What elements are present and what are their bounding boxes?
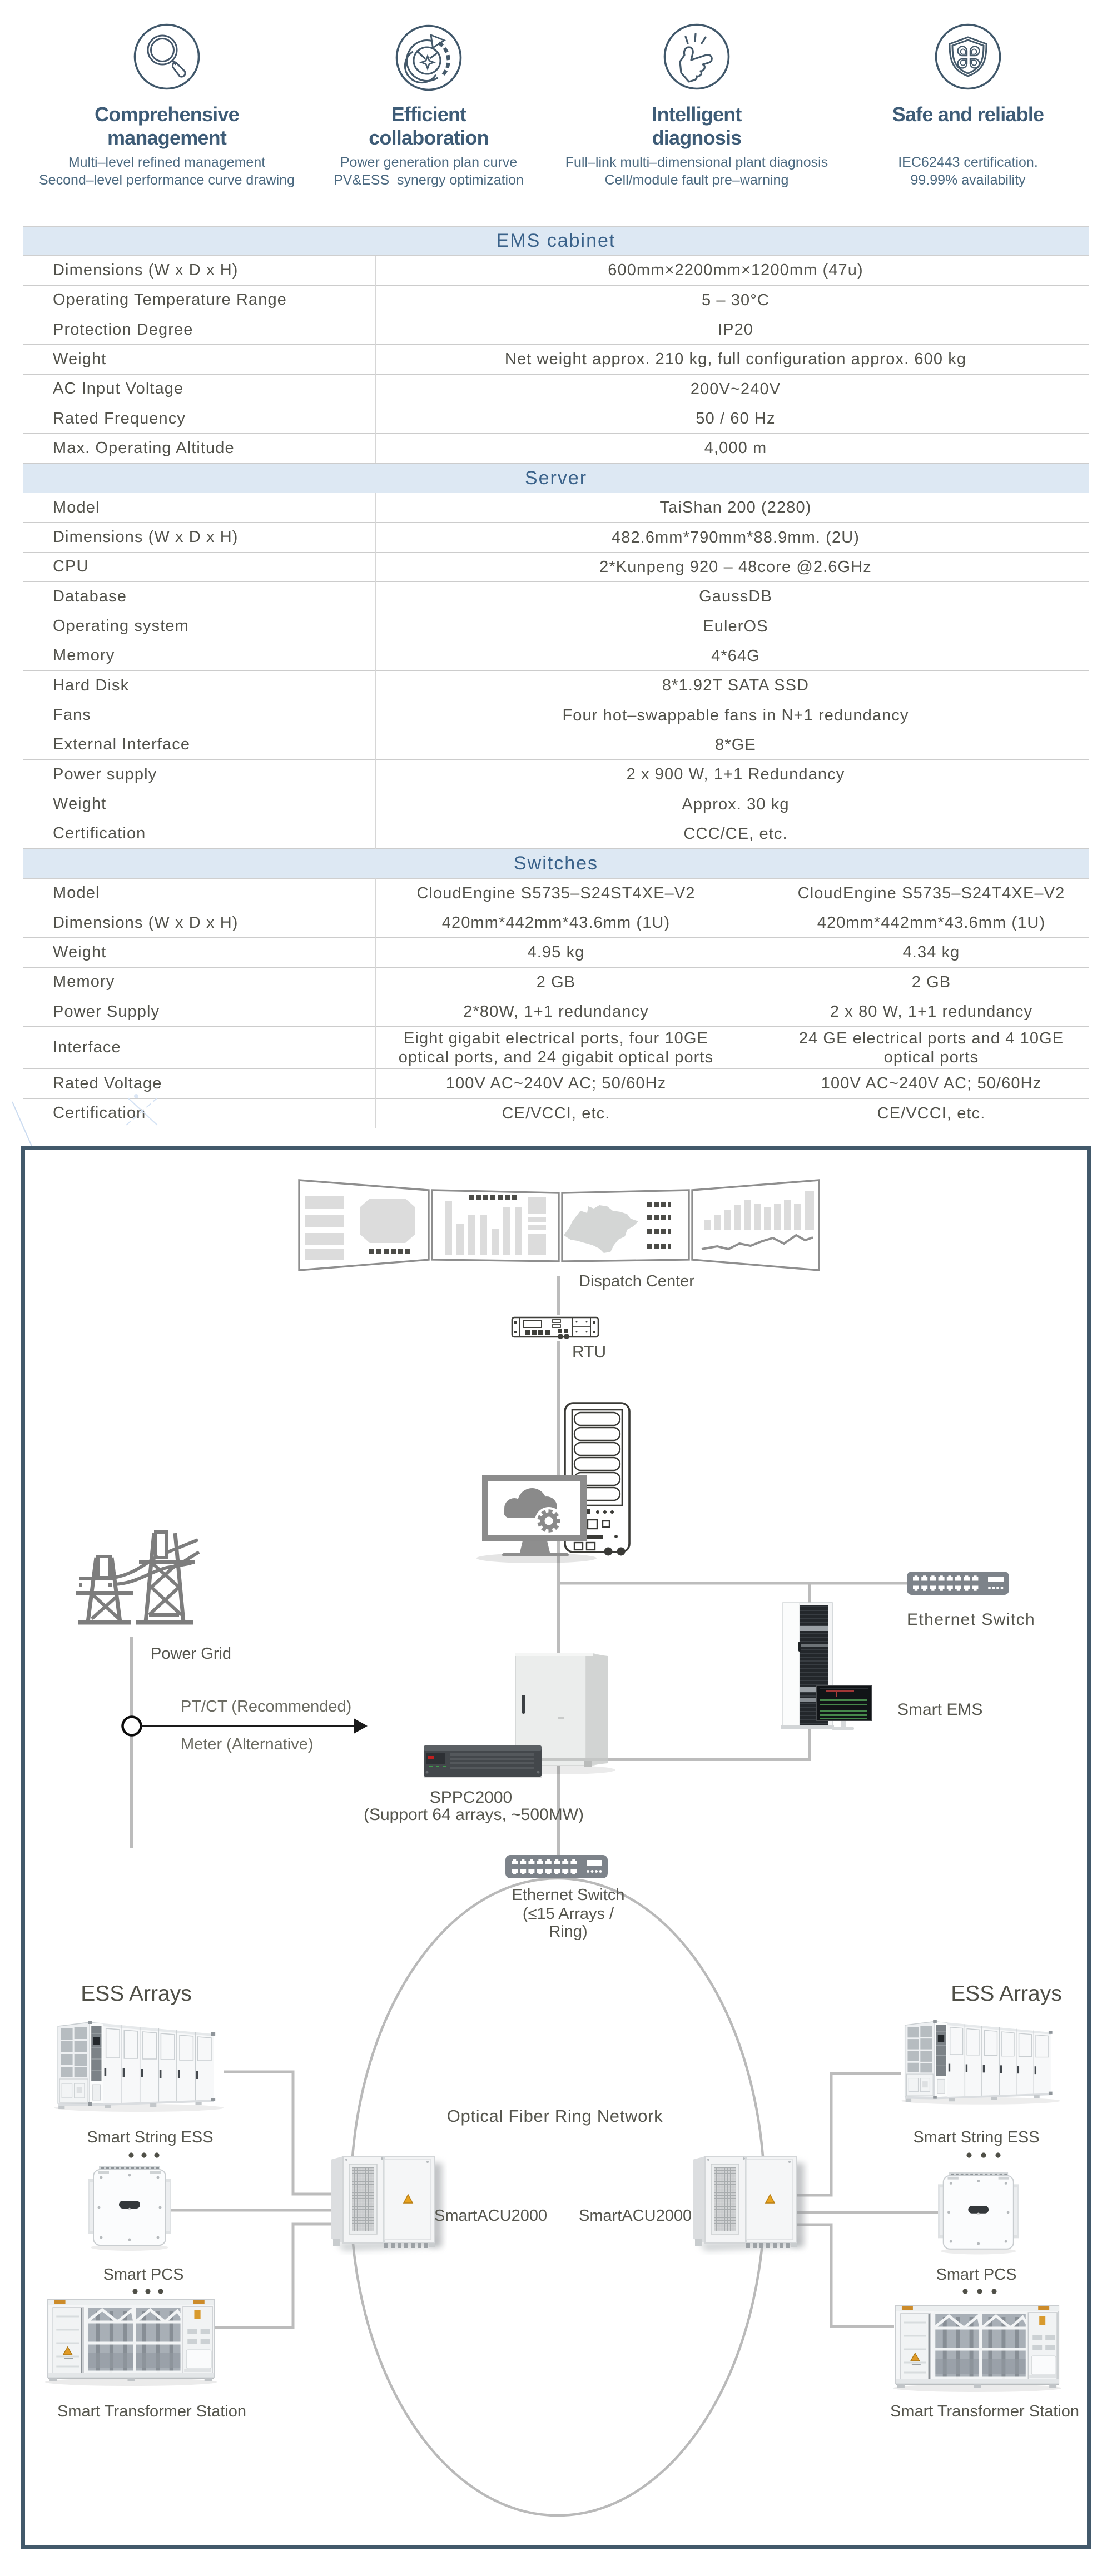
svg-text:RTU: RTU [572,1343,606,1361]
svg-text:ESS Arrays: ESS Arrays [81,1982,191,2006]
svg-text:Smart EMS: Smart EMS [897,1700,982,1719]
svg-text:Smart Transformer Station: Smart Transformer Station [57,2403,246,2420]
svg-text:(≤15 Arrays /: (≤15 Arrays / [523,1905,614,1923]
svg-text:Meter (Alternative): Meter (Alternative) [181,1735,314,1753]
svg-text:Ring): Ring) [549,1923,587,1941]
svg-text:Optical Fiber Ring Network: Optical Fiber Ring Network [447,2106,663,2126]
svg-text:Smart PCS: Smart PCS [103,2266,183,2284]
svg-text:ESS Arrays: ESS Arrays [951,1982,1061,2006]
svg-text:SPPC2000: SPPC2000 [430,1788,512,1807]
svg-text:Ethernet Switch: Ethernet Switch [512,1886,624,1904]
svg-text:Smart String ESS: Smart String ESS [913,2129,1039,2146]
svg-text:Smart Transformer Station: Smart Transformer Station [890,2403,1079,2420]
svg-text:Power Grid: Power Grid [151,1645,231,1663]
svg-text:PT/CT (Recommended): PT/CT (Recommended) [181,1698,351,1715]
svg-text:SmartACU2000: SmartACU2000 [434,2207,547,2225]
svg-text:Ethernet Switch: Ethernet Switch [907,1610,1035,1629]
svg-text:Dispatch Center: Dispatch Center [579,1272,694,1290]
svg-text:Smart String ESS: Smart String ESS [87,2129,213,2146]
svg-text:(Support 64 arrays, ~500MW): (Support 64 arrays, ~500MW) [364,1806,584,1824]
svg-text:Smart PCS: Smart PCS [936,2266,1016,2284]
svg-text:SmartACU2000: SmartACU2000 [579,2207,692,2225]
